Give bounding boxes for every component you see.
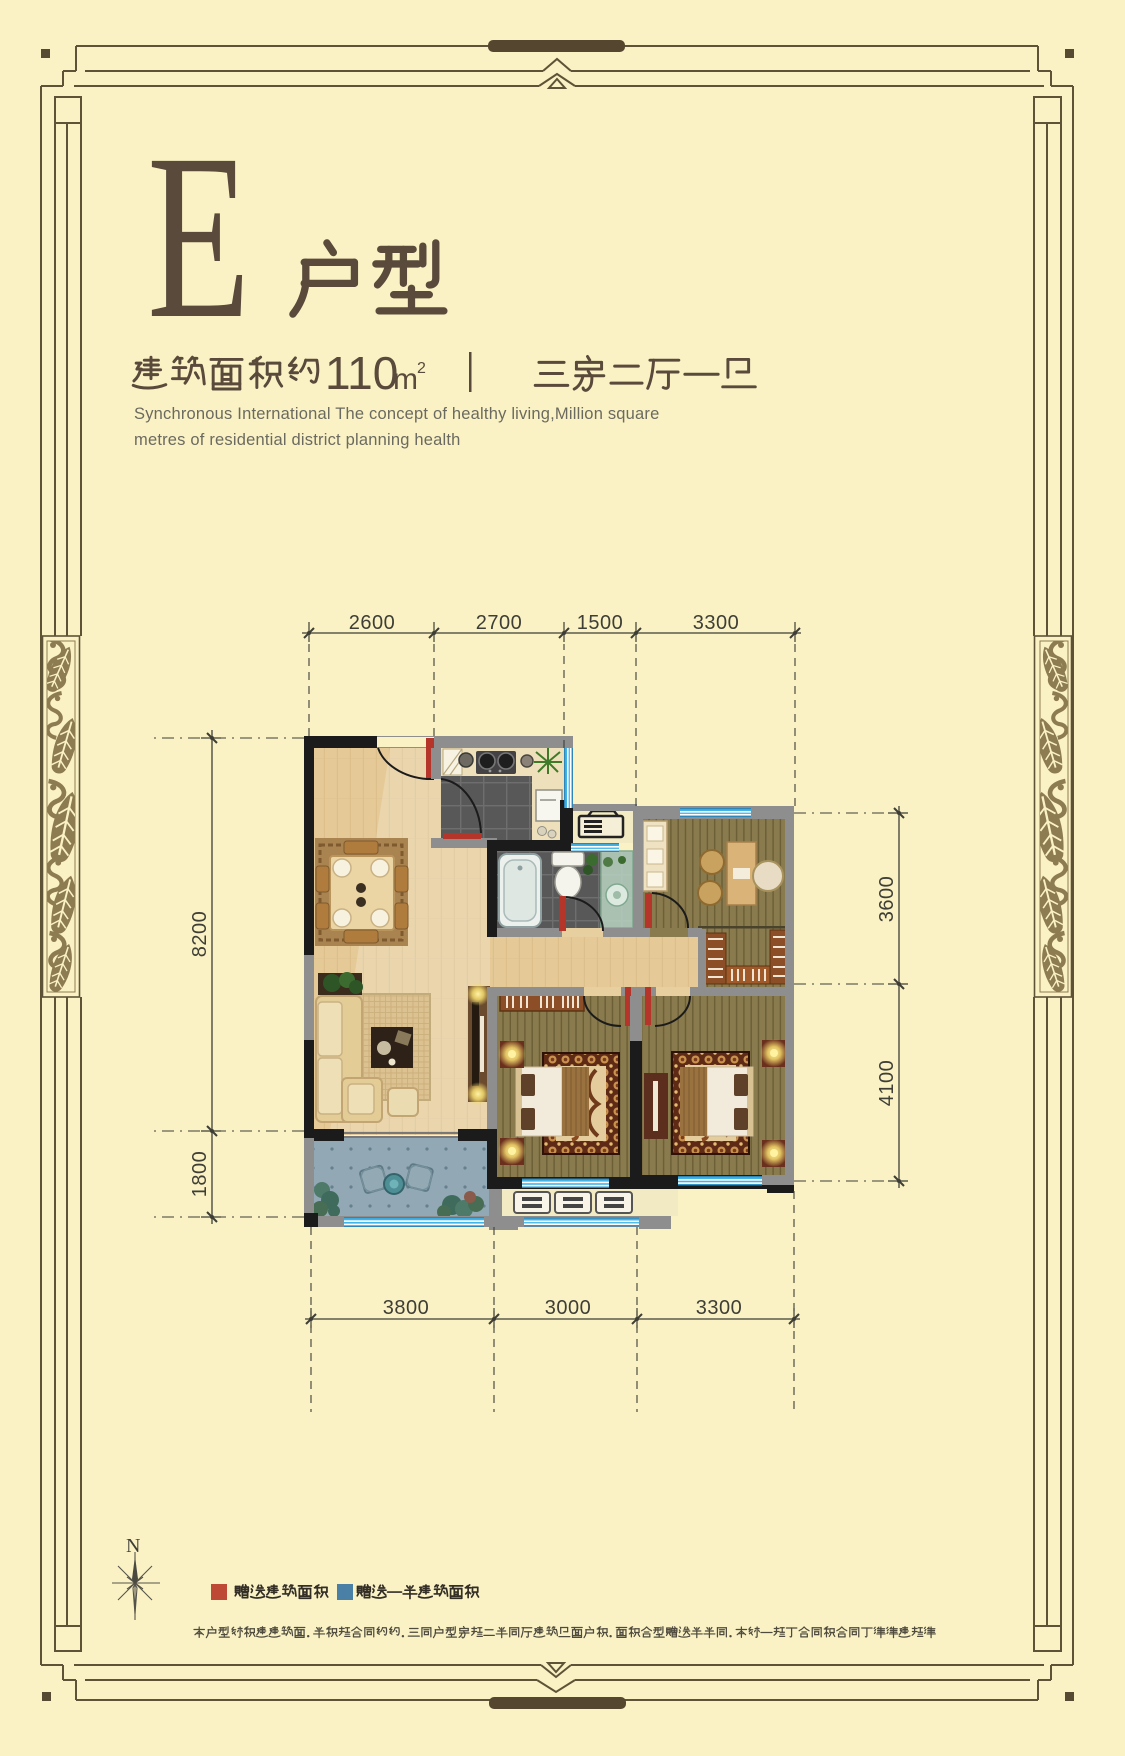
- svg-text:110: 110: [325, 347, 398, 399]
- svg-text:3800: 3800: [383, 1297, 430, 1319]
- svg-text:2700: 2700: [476, 612, 523, 634]
- svg-text:8200: 8200: [189, 911, 211, 958]
- svg-text:3600: 3600: [876, 876, 898, 923]
- svg-text:4100: 4100: [876, 1060, 898, 1107]
- svg-text:2: 2: [417, 360, 426, 377]
- svg-text:3000: 3000: [545, 1297, 592, 1319]
- svg-text:3300: 3300: [693, 612, 740, 634]
- svg-text:N: N: [126, 1535, 140, 1557]
- svg-text:E: E: [147, 104, 251, 367]
- svg-text:1800: 1800: [189, 1151, 211, 1198]
- svg-text:2600: 2600: [349, 612, 396, 634]
- svg-text:Synchronous International The: Synchronous International The concept of…: [134, 405, 660, 423]
- svg-text:3300: 3300: [696, 1297, 743, 1319]
- svg-text:metres of residential district: metres of residential district planning …: [134, 431, 461, 449]
- svg-text:m: m: [393, 363, 418, 396]
- svg-text:1500: 1500: [577, 612, 624, 634]
